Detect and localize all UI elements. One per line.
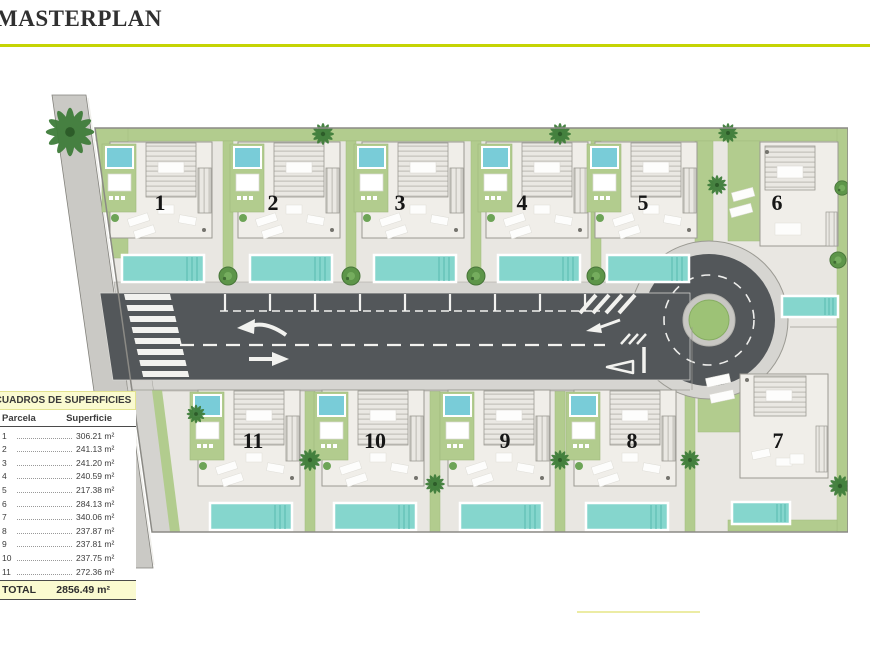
total-label: TOTAL bbox=[2, 584, 36, 596]
column-header-parcela: Parcela bbox=[2, 413, 36, 424]
table-row: 11272.36 m² bbox=[0, 564, 136, 578]
roundabout-island bbox=[689, 300, 729, 340]
table-row: 2241.13 m² bbox=[0, 442, 136, 456]
plot-number-6: 6 bbox=[772, 190, 783, 215]
total-value: 2856.49 m² bbox=[56, 584, 110, 596]
column-header-superficie: Superficie bbox=[66, 413, 112, 424]
tree-icon bbox=[467, 267, 485, 285]
table-row: 6284.13 m² bbox=[0, 496, 136, 510]
plot-number-11: 11 bbox=[243, 428, 264, 453]
footer-accent-line bbox=[577, 611, 700, 613]
tree-icon bbox=[342, 267, 360, 285]
table-row: 7340.06 m² bbox=[0, 510, 136, 524]
tree-icon bbox=[830, 252, 846, 268]
surface-table-rows: 1306.21 m²2241.13 m²3241.20 m²4240.59 m²… bbox=[0, 427, 136, 578]
plot-number-1: 1 bbox=[155, 190, 166, 215]
plot-number-3: 3 bbox=[395, 190, 406, 215]
plot-number-2: 2 bbox=[268, 190, 279, 215]
surface-table-columns: Parcela Superficie bbox=[0, 410, 136, 427]
plot-number-4: 4 bbox=[517, 190, 528, 215]
tree-icon bbox=[219, 267, 237, 285]
table-row: 5217.38 m² bbox=[0, 482, 136, 496]
plot-number-8: 8 bbox=[627, 428, 638, 453]
table-row: 4240.59 m² bbox=[0, 469, 136, 483]
surface-table-total-row: TOTAL 2856.49 m² bbox=[0, 580, 136, 600]
plot-number-10: 10 bbox=[364, 428, 386, 453]
plot-number-7: 7 bbox=[773, 428, 784, 453]
surface-table-title: CUADROS DE SUPERFICIES bbox=[0, 391, 136, 410]
plot-number-5: 5 bbox=[638, 190, 649, 215]
tree-icon bbox=[587, 267, 605, 285]
page-title: MASTERPLAN bbox=[0, 6, 162, 32]
plot-number-9: 9 bbox=[500, 428, 511, 453]
tree-icon bbox=[835, 181, 848, 195]
table-row: 9237.81 m² bbox=[0, 537, 136, 551]
table-row: 10237.75 m² bbox=[0, 550, 136, 564]
masterplan-area: 1 2 3 4 5 6 7 8 9 10 11 bbox=[40, 93, 848, 578]
masterplan-drawing: 1 2 3 4 5 6 7 8 9 10 11 bbox=[40, 93, 848, 578]
table-row: 3241.20 m² bbox=[0, 455, 136, 469]
table-row: 8237.87 m² bbox=[0, 523, 136, 537]
surface-table: CUADROS DE SUPERFICIES Parcela Superfici… bbox=[0, 391, 136, 600]
title-accent-line bbox=[0, 44, 870, 47]
table-row: 1306.21 m² bbox=[0, 428, 136, 442]
